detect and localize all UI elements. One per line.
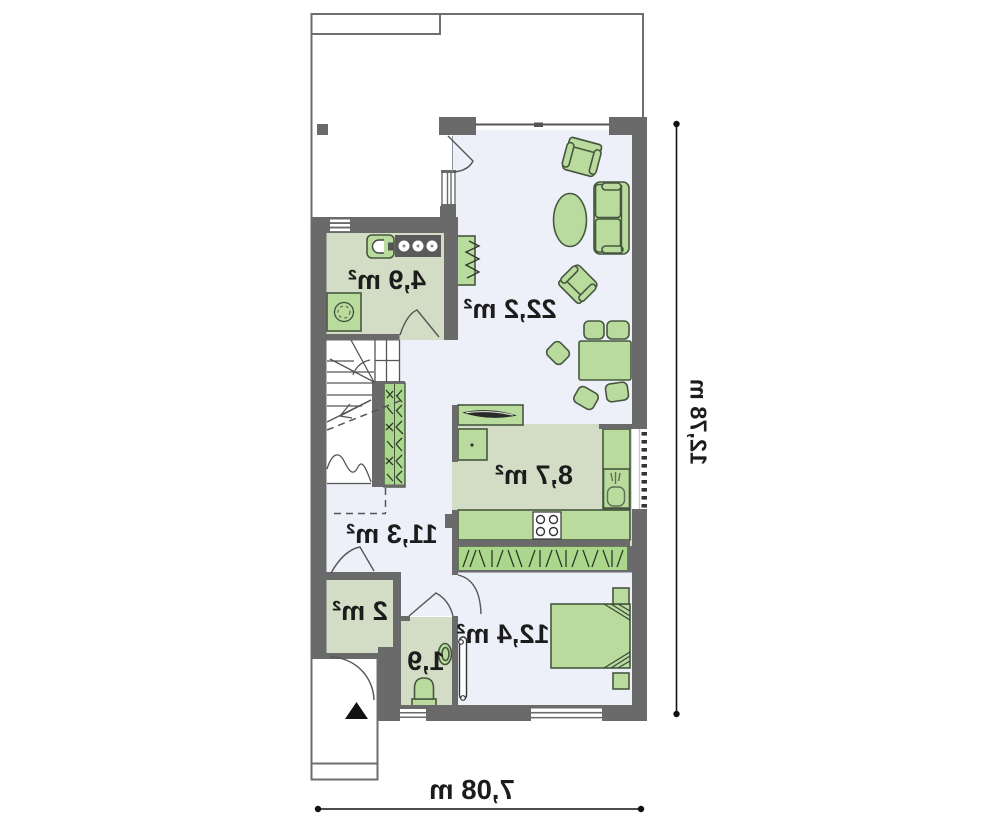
- svg-text:22,2 m²: 22,2 m²: [463, 294, 556, 324]
- svg-text:12,78 m: 12,78 m: [686, 379, 712, 465]
- svg-text:11,3 m²: 11,3 m²: [346, 519, 438, 549]
- svg-text:12,4 m²: 12,4 m²: [456, 619, 549, 649]
- svg-text:7,08 m: 7,08 m: [429, 774, 515, 805]
- svg-text:8,7 m²: 8,7 m²: [495, 460, 573, 490]
- svg-text:2 m²: 2 m²: [332, 596, 388, 626]
- svg-text:1,9: 1,9: [407, 646, 445, 676]
- svg-text:4,9 m²: 4,9 m²: [348, 265, 426, 295]
